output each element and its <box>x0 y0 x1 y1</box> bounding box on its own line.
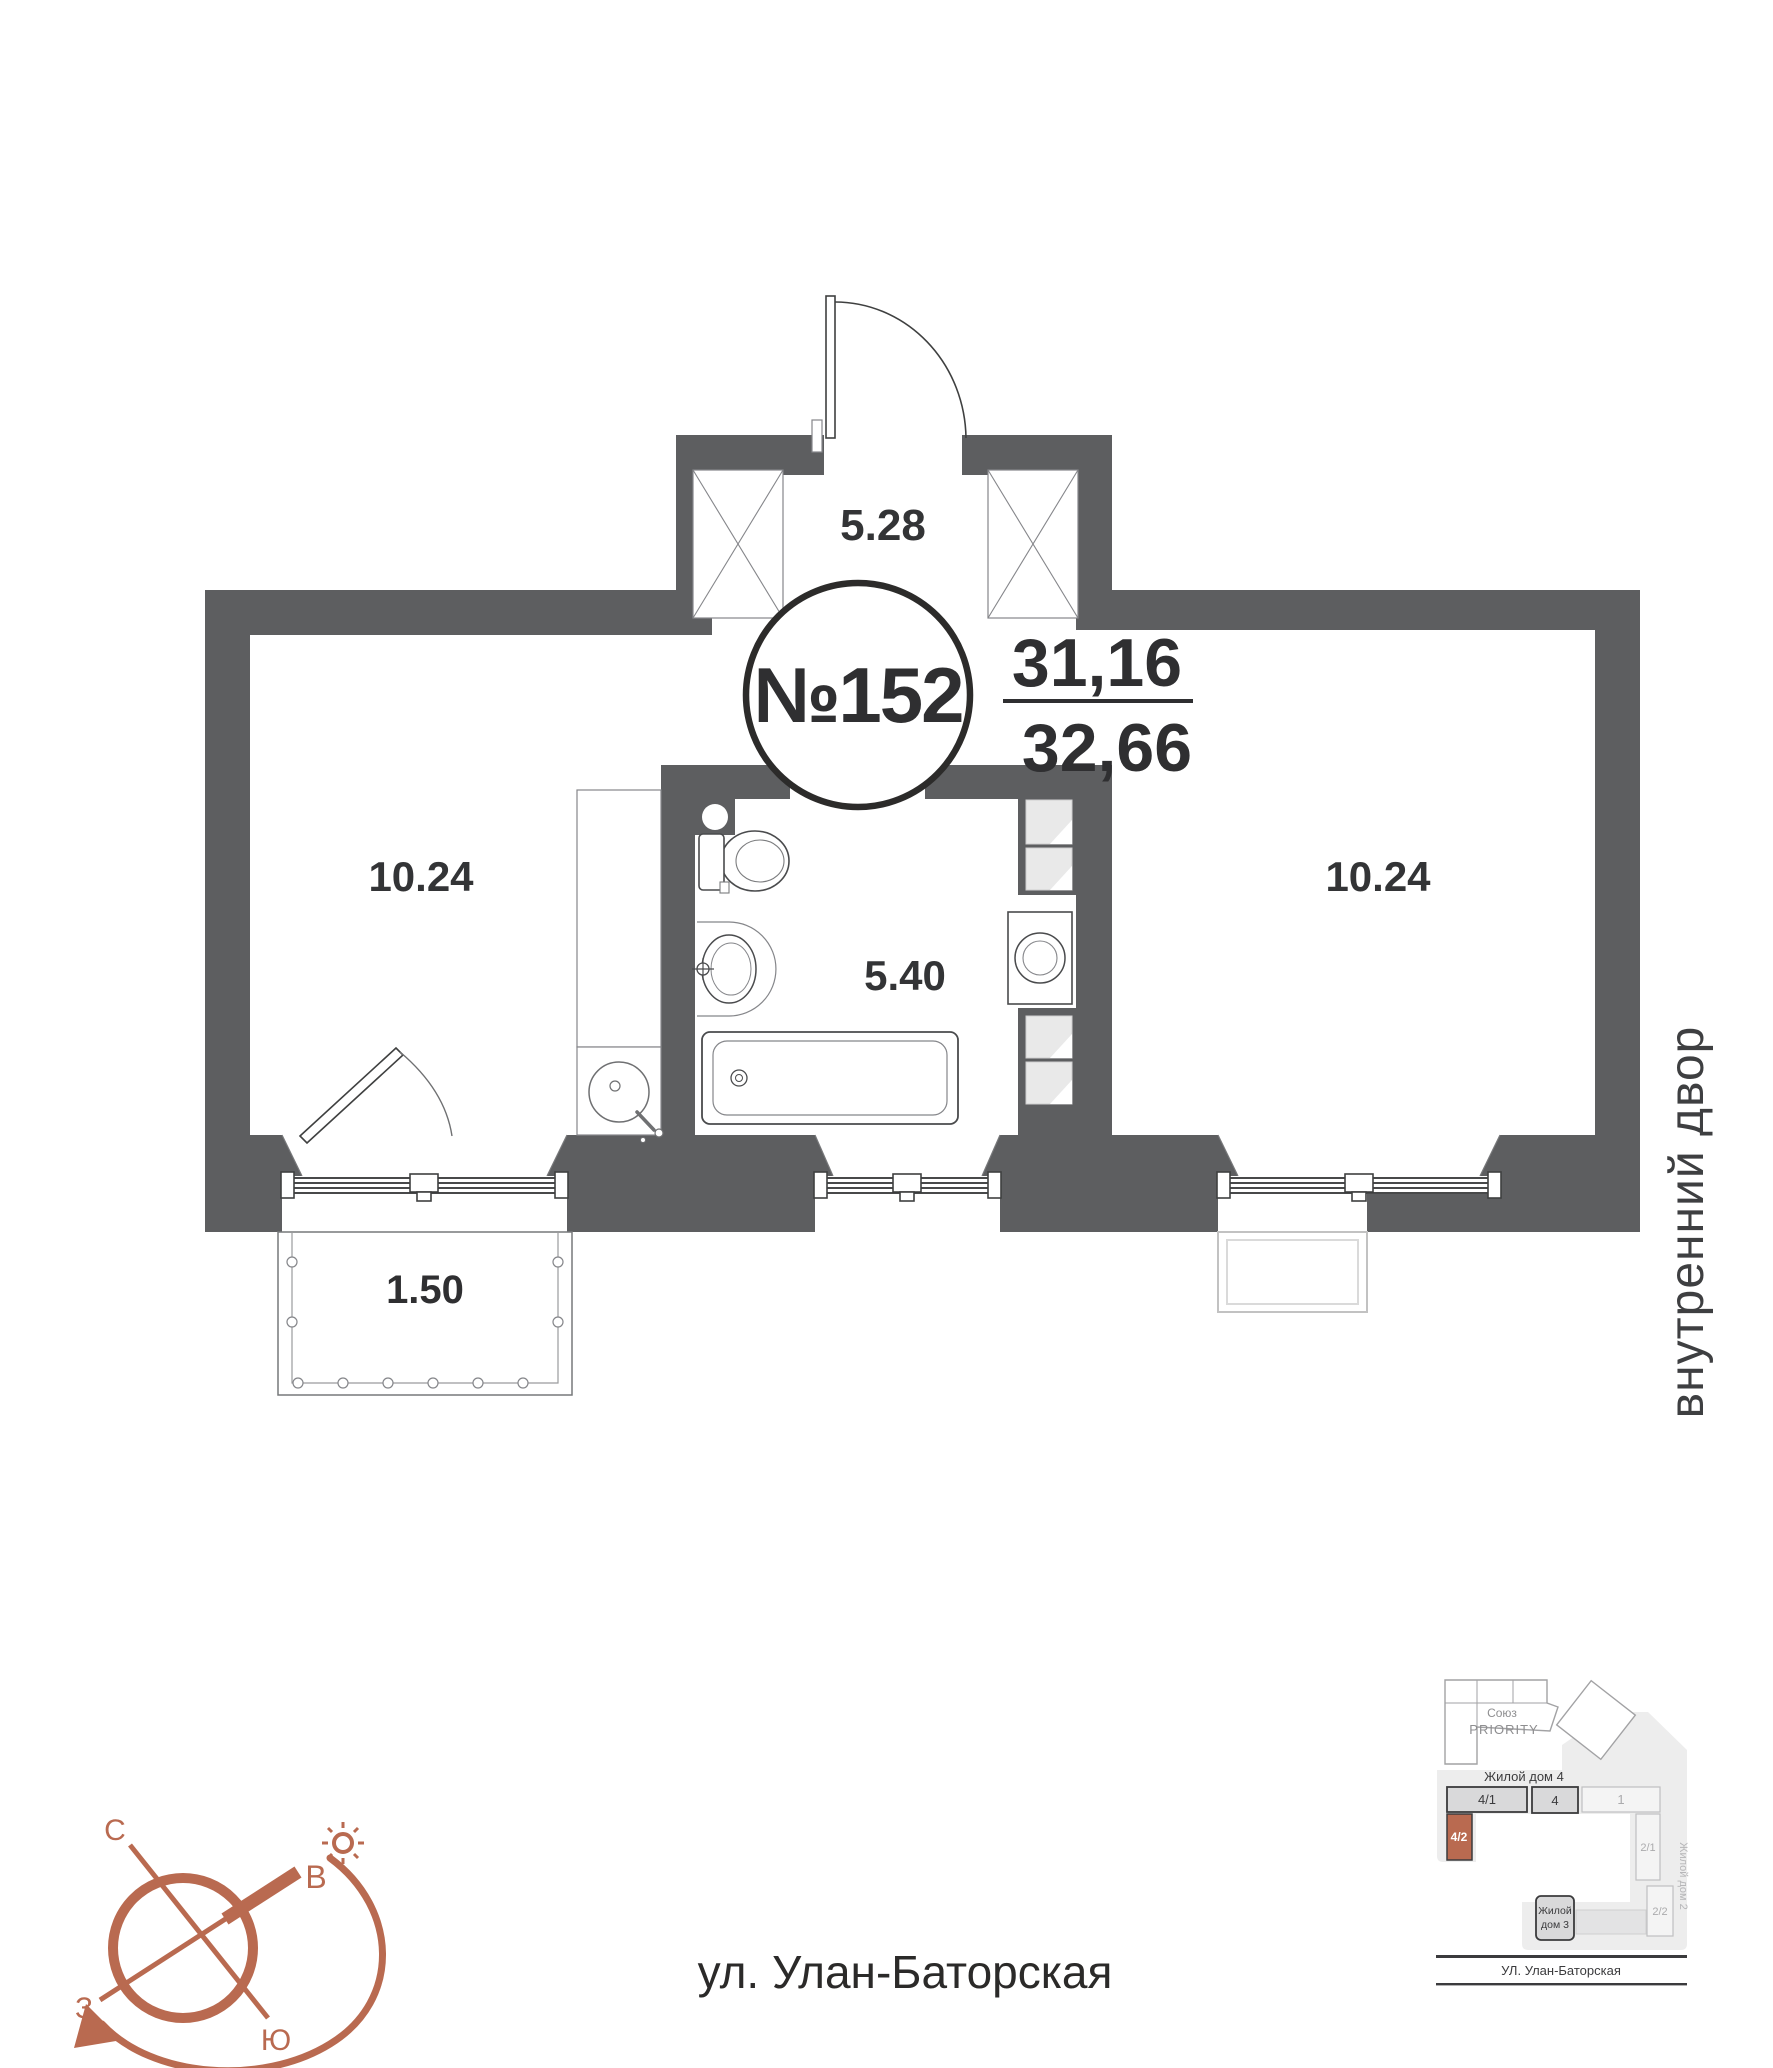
vent-shaft-icon <box>695 799 735 835</box>
minimap-house3-label-1: Жилой <box>1538 1905 1572 1917</box>
site-minimap: Союз PRIORITY Жилой дом 4 4/1 4 1 4/2 2/… <box>1436 1680 1689 1985</box>
compass-north-label: С <box>104 1814 126 1847</box>
minimap-building-4-1: 4/1 <box>1447 1787 1527 1812</box>
compass-south-label: Ю <box>261 2024 291 2057</box>
minimap-street-label: УЛ. Улан-Баторская <box>1501 1963 1621 1978</box>
minimap-unit-label: 4/2 <box>1451 1830 1468 1844</box>
area-living: 31,16 <box>1012 625 1182 701</box>
minimap-house3-label-2: дом 3 <box>1541 1919 1569 1931</box>
area-total: 32,66 <box>1022 710 1192 786</box>
minimap-building-4: 4 <box>1532 1787 1578 1813</box>
washbasin-icon <box>692 922 776 1016</box>
minimap-complex-name-2: PRIORITY <box>1469 1722 1538 1737</box>
compass-icon: С В З Ю <box>74 1814 383 2068</box>
street-label: ул. Улан-Баторская <box>698 1946 1113 1998</box>
room-label-hallway: 5.28 <box>840 501 926 550</box>
minimap-unit-label: 1 <box>1617 1792 1624 1807</box>
compass-east-label: В <box>305 1859 326 1895</box>
toilet-icon <box>699 831 789 893</box>
area-fraction: 31,16 32,66 <box>1003 625 1193 786</box>
balcony-door-swing <box>300 1048 452 1143</box>
minimap-unit-label: 2/2 <box>1652 1906 1667 1918</box>
courtyard-label: внутренний двор <box>1661 1026 1714 1419</box>
compass-west-label: З <box>75 1992 93 2025</box>
balcony-area-label: 1.50 <box>386 1268 464 1312</box>
minimap-unit-label: 2/1 <box>1640 1842 1655 1854</box>
closet-left <box>693 470 783 618</box>
washing-machine-icon <box>1008 912 1072 1004</box>
window-left-balcony-door <box>281 1135 568 1232</box>
compass-sun-icon <box>322 1822 364 1864</box>
minimap-building-2-2: 2/2 <box>1647 1886 1673 1936</box>
minimap-house2-label: Жилой дом 2 <box>1677 1842 1689 1909</box>
window-basket <box>1218 1232 1367 1312</box>
minimap-building-4-2-highlighted: 4/2 <box>1447 1814 1472 1860</box>
bathtub-icon <box>702 1032 958 1124</box>
apartment-number-badge: №152 <box>746 583 970 807</box>
minimap-complex-name-1: Союз <box>1487 1706 1517 1720</box>
closet-right <box>988 470 1078 618</box>
balcony: 1.50 <box>278 1232 572 1395</box>
room-label-left: 10.24 <box>368 853 474 900</box>
minimap-road: УЛ. Улан-Баторская <box>1436 1955 1687 1985</box>
minimap-unit-label: 4 <box>1551 1793 1558 1808</box>
apartment-number: №152 <box>753 651 962 739</box>
floorplan-drawing: 1.50 <box>0 0 1773 2068</box>
minimap-building-2-1: 2/1 <box>1636 1814 1660 1880</box>
minimap-unit-label: 4/1 <box>1478 1792 1496 1807</box>
room-label-right: 10.24 <box>1325 853 1431 900</box>
minimap-complex-outline: Союз PRIORITY <box>1445 1680 1635 1764</box>
floorplan-page: 1.50 <box>0 0 1773 2068</box>
entry-door <box>812 296 966 452</box>
window-middle <box>814 1135 1001 1232</box>
room-label-bathroom: 5.40 <box>864 952 946 999</box>
minimap-house4-label: Жилой дом 4 <box>1484 1769 1564 1784</box>
minimap-building-1: 1 <box>1582 1787 1660 1812</box>
